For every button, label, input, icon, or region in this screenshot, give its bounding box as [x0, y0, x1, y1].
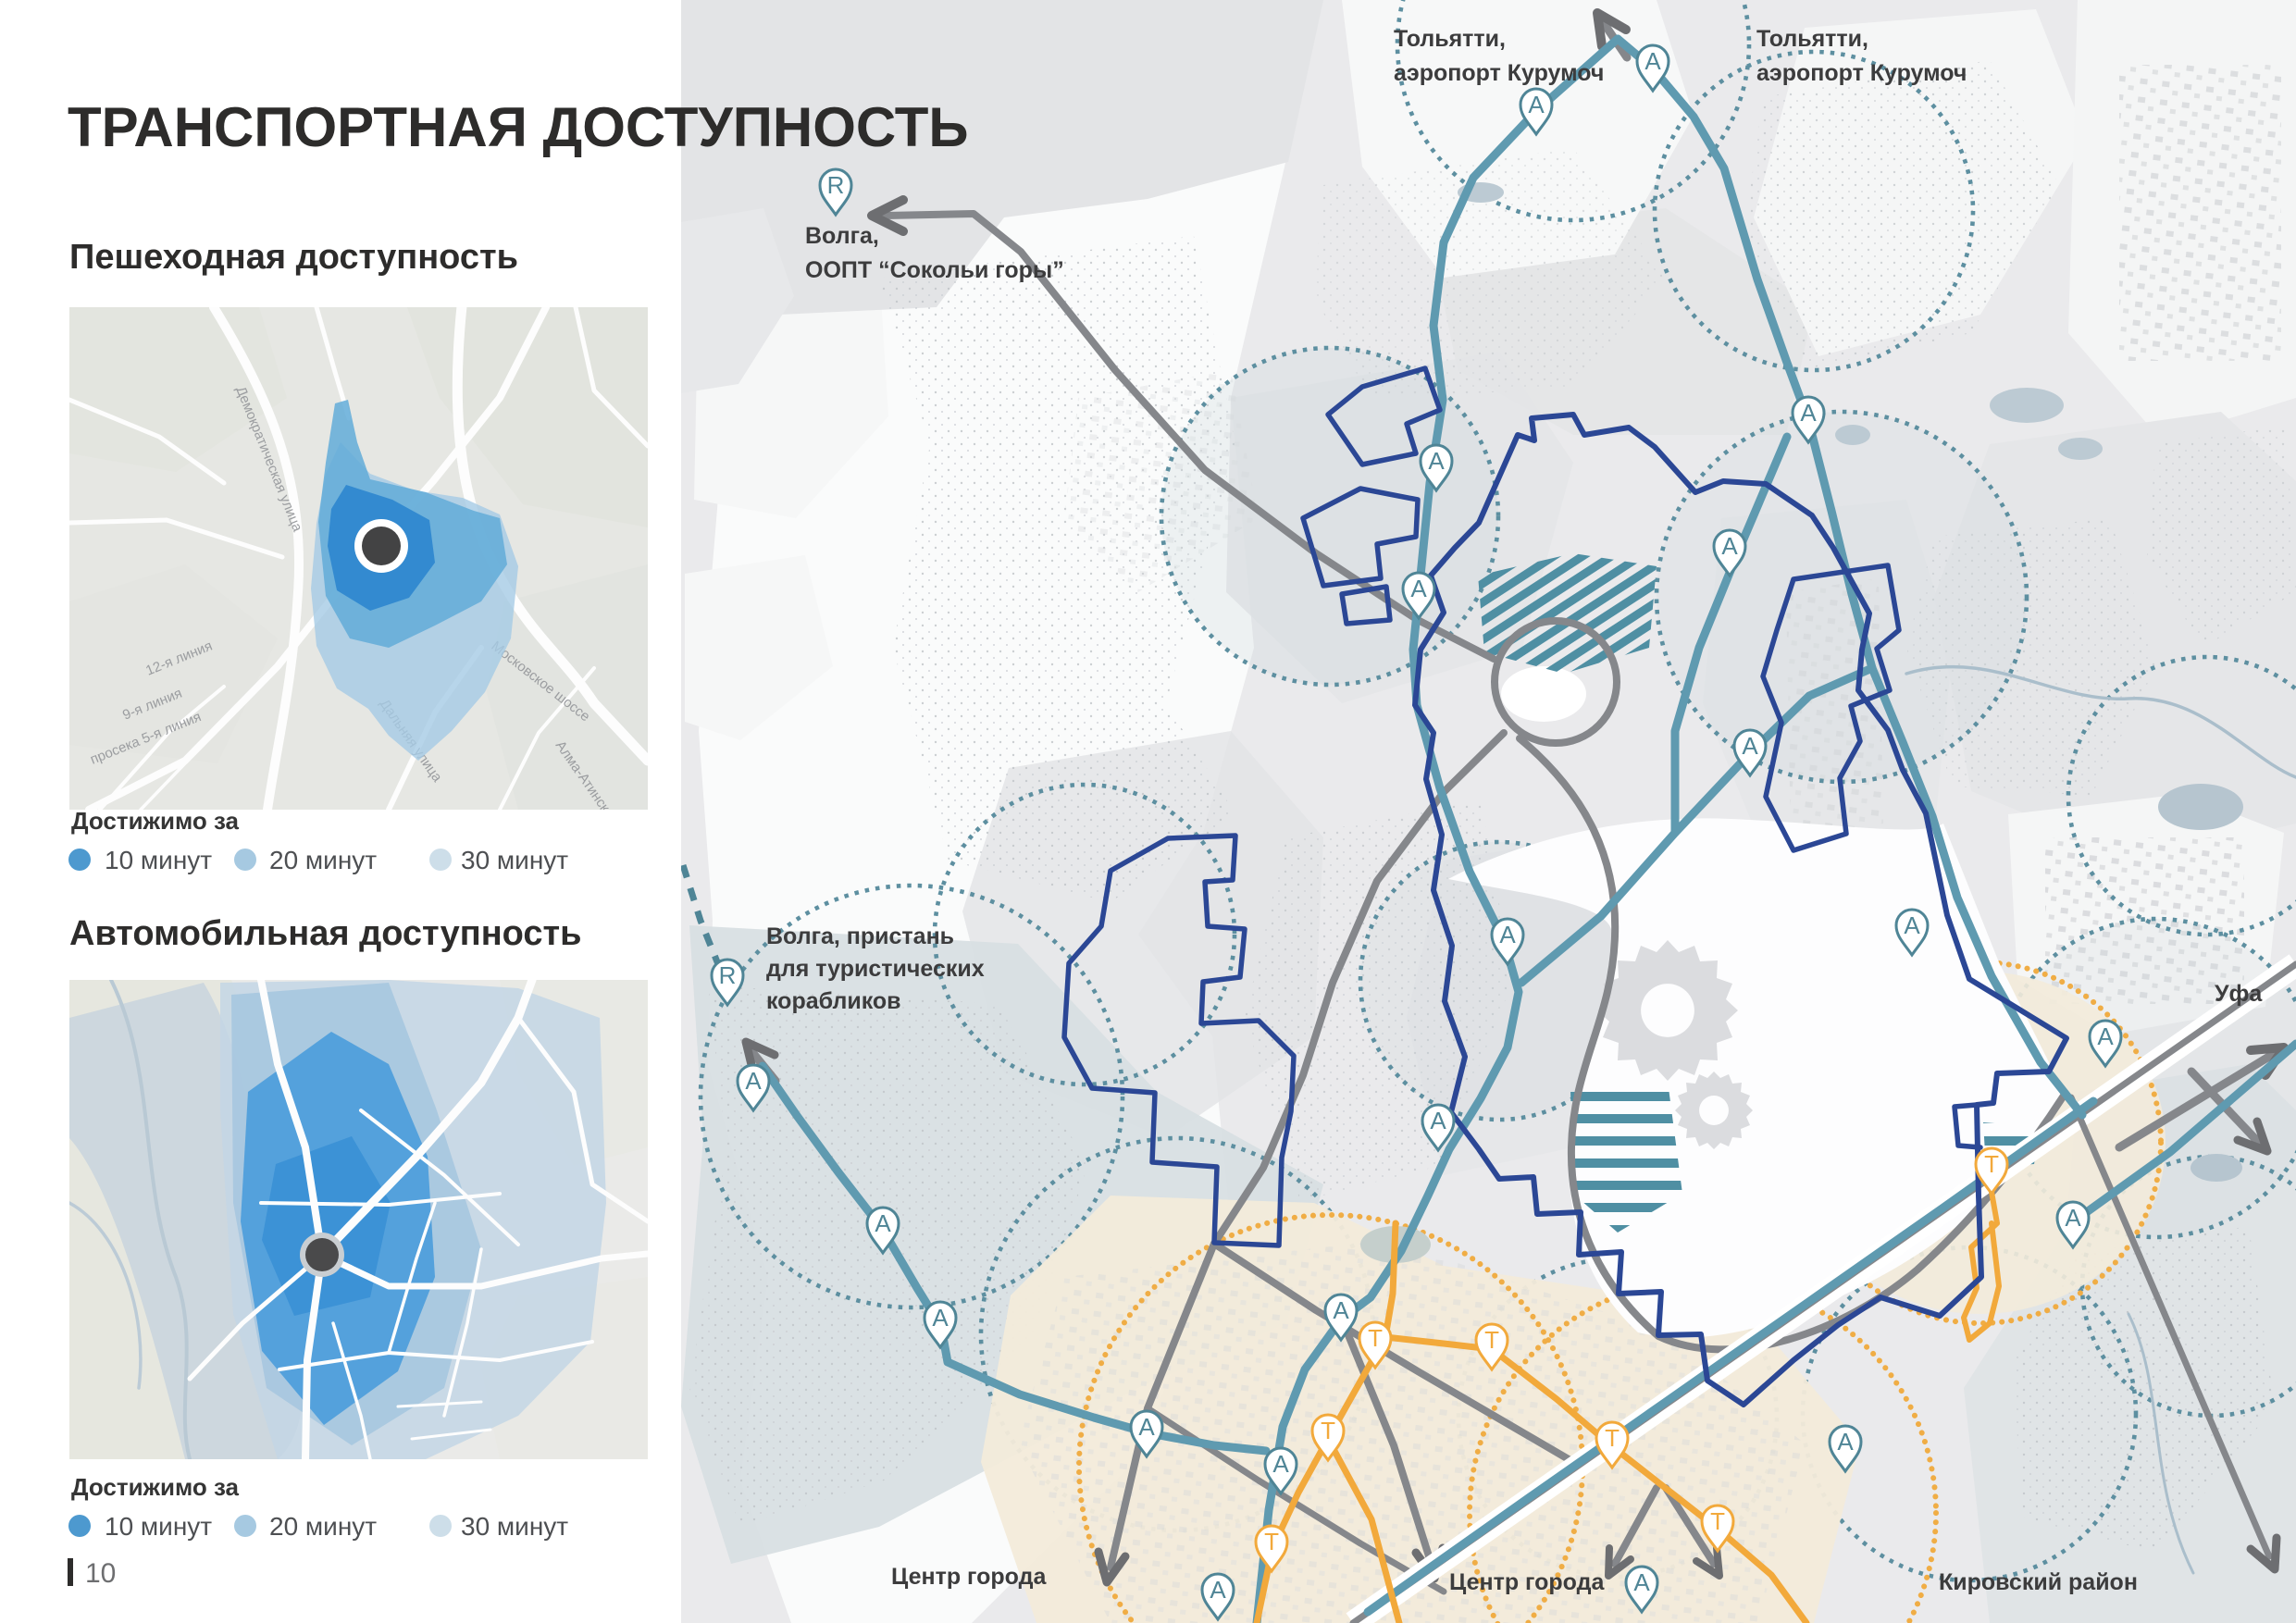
svg-text:Центр города: Центр города [1449, 1569, 1605, 1595]
svg-text:A: A [1742, 732, 1758, 760]
svg-text:R: R [719, 961, 737, 989]
svg-text:30 минут: 30 минут [461, 1512, 568, 1541]
svg-text:Кировский район: Кировский район [1939, 1569, 2138, 1595]
svg-text:A: A [1644, 47, 1661, 75]
svg-text:A: A [2097, 1022, 2114, 1050]
svg-text:T: T [1368, 1324, 1383, 1352]
svg-text:A: A [1333, 1296, 1349, 1324]
svg-text:T: T [1264, 1528, 1279, 1555]
svg-text:A: A [1430, 1107, 1446, 1134]
svg-text:A: A [1410, 575, 1427, 602]
svg-text:Центр города: Центр города [891, 1564, 1047, 1590]
svg-text:A: A [1800, 399, 1817, 427]
svg-text:R: R [827, 171, 845, 199]
svg-text:A: A [1428, 447, 1445, 475]
svg-text:A: A [1499, 921, 1516, 948]
svg-text:A: A [932, 1304, 949, 1332]
svg-text:A: A [875, 1209, 891, 1237]
svg-text:T: T [1484, 1326, 1499, 1354]
svg-text:10 минут: 10 минут [105, 846, 212, 874]
svg-text:A: A [2065, 1204, 2081, 1232]
svg-text:A: A [745, 1067, 762, 1095]
svg-text:T: T [1710, 1507, 1725, 1535]
svg-text:20 минут: 20 минут [269, 846, 377, 874]
svg-text:10 минут: 10 минут [105, 1512, 212, 1541]
svg-text:A: A [1272, 1450, 1289, 1478]
svg-text:A: A [1721, 532, 1738, 560]
svg-text:A: A [1633, 1568, 1650, 1596]
svg-text:A: A [1837, 1428, 1854, 1456]
svg-text:30 минут: 30 минут [461, 846, 568, 874]
svg-text:A: A [1904, 911, 1920, 939]
svg-text:Уфа: Уфа [2215, 981, 2263, 1007]
svg-text:10: 10 [85, 1558, 116, 1589]
svg-text:A: A [1528, 91, 1545, 118]
svg-text:Достижимо за: Достижимо за [71, 1473, 240, 1501]
svg-text:Пешеходная доступность: Пешеходная доступность [69, 238, 518, 277]
svg-text:T: T [1321, 1417, 1335, 1444]
svg-text:T: T [1984, 1150, 1999, 1178]
svg-text:ТРАНСПОРТНАЯ ДОСТУПНОСТЬ: ТРАНСПОРТНАЯ ДОСТУПНОСТЬ [68, 96, 968, 158]
svg-text:A: A [1138, 1413, 1155, 1441]
svg-text:20 минут: 20 минут [269, 1512, 377, 1541]
svg-text:A: A [1210, 1576, 1226, 1604]
svg-text:Достижимо за: Достижимо за [71, 807, 240, 835]
svg-text:T: T [1605, 1424, 1620, 1452]
svg-text:Автомобильная доступность: Автомобильная доступность [69, 914, 581, 953]
